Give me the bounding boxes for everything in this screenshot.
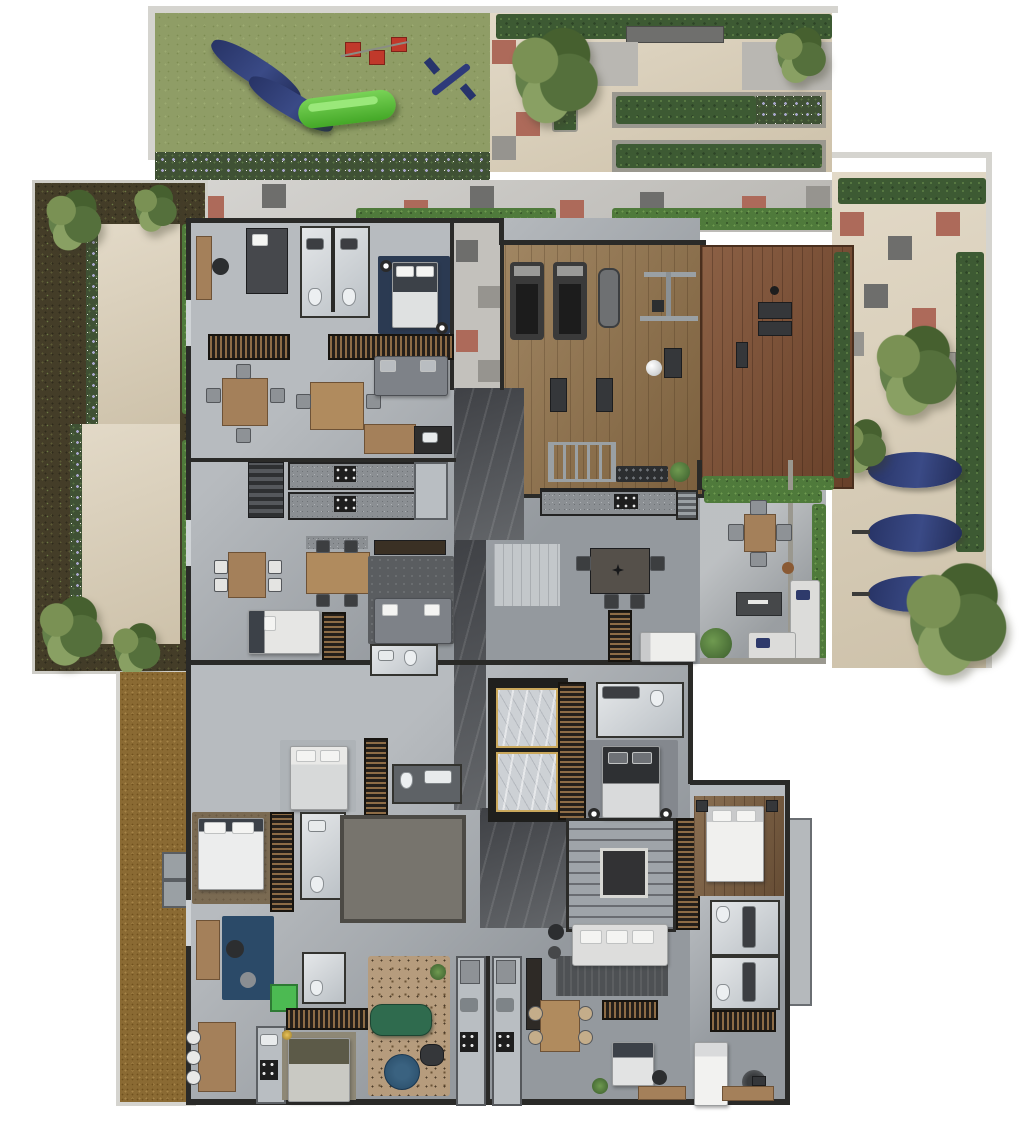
bl-master-pillow [232,822,254,834]
tl-bathroom-divider [331,228,335,312]
bc-galley2-fridge [496,960,516,984]
elevator-cab-2 [496,752,558,812]
cable-station-bar-bottom [640,316,698,321]
bl-toilet1 [400,772,413,789]
ml-sink [378,650,394,661]
bl-wardrobe3 [286,1008,374,1030]
terrace-chair [728,524,744,541]
treadmill-2-belt [559,284,581,334]
bl-bath2-toilet [310,980,323,996]
bl-tub [424,770,452,784]
bl-wardrobe2 [270,812,294,912]
ladder-rack [548,442,616,482]
bl-bath2 [302,952,346,1004]
tl-sink-1 [306,238,324,250]
mid-hall-tiles [494,544,560,606]
mid-chair-dark [576,556,591,571]
swing-seat-red-2 [369,50,385,65]
bc-galley2-sink [496,998,514,1012]
bc-bed-pillow [632,752,652,764]
outer-wall-top [148,6,838,13]
bc-galley1-stove [460,1032,478,1052]
bc-rattan-chair [528,1030,543,1045]
br-vanity-2 [742,962,756,1002]
ml-dining-big [306,552,370,594]
ml-chair-dark [316,594,330,607]
terrace-chair [750,500,767,515]
treadmill-1-belt [516,284,538,334]
tl-wardrobe-1 [208,334,290,360]
tl-toilet-2 [342,288,356,306]
tile-gray [806,186,830,210]
bc-plant [592,1078,608,1094]
bl-hall-sink [308,820,326,832]
tl-speaker-2 [436,322,448,334]
outer-wall-playground-left [148,6,155,160]
left-garden-flower-border-upper [86,224,98,424]
tl-chair [270,388,285,403]
ml-sofa-pillow [424,604,440,616]
navy-lounger-2 [868,514,962,552]
wall-right-lower-edge [688,660,693,784]
bc-rattan-chair [578,1030,593,1045]
ml-stove-1 [334,466,356,482]
terrace-fire-slot [748,600,768,604]
tl-chair [236,428,251,443]
br-bed-pillow [712,810,732,822]
ml-counter-right [374,540,446,555]
bl-void-court [340,815,466,923]
tl-toilet-1 [308,288,322,306]
wall-top-gym [499,240,702,245]
br-desk-items [752,1076,766,1086]
mid-chair-dark [650,556,665,571]
right-patio-hedge-top [838,178,986,204]
bc-desk-chair [652,1070,667,1085]
mid-kitchen-counter [540,490,678,516]
ml-dining-small [228,552,266,598]
br-nightstand-2 [766,800,778,812]
bc-bed-pillow [608,752,628,764]
gym-mat-1 [550,378,567,412]
bl-master-pillow [204,822,226,834]
bl-kitchen-stove [260,1060,278,1080]
terrace-bottom-curb [700,658,826,664]
mid-chair-dark [604,594,619,609]
dumbbell-rack [616,466,668,482]
lounger-arm-left [852,592,870,596]
tl-cabinet-pillow [252,234,268,246]
bl-dining-chair [186,1070,201,1085]
outer-wall-right-top-step [832,152,990,158]
gym-ball [646,360,662,376]
wall-top-apartments [186,218,504,223]
wall-right-wing-top [690,780,790,785]
right-patio-hedge-column [956,252,984,552]
bc-sofa-cushion [580,930,602,944]
bl-dining-chair [186,1030,201,1045]
tile-gray [492,136,516,160]
tile-dark [470,186,494,210]
ml-chair [214,578,228,592]
stair-center-void [600,848,648,898]
ml-utility-shelf [248,462,284,518]
bl-office-chair [226,940,244,958]
core-wardrobe-slats [558,682,586,820]
bl-hall-toilet [310,876,324,893]
mid-kitchen-stove [614,494,638,509]
tl-chair [206,388,221,403]
lobby-marble [480,808,568,928]
corridor-marble-upper [454,388,524,540]
bc-desk [638,1086,686,1100]
flowerbed-top [155,152,490,180]
bc-sconce-2 [660,808,672,820]
tl-chair [296,394,311,409]
tl-sink-2 [340,238,358,250]
tl-sofa-pillow [380,360,396,372]
br-bed-pillow [736,810,756,822]
bc-wardrobe-h [602,1000,658,1020]
bc-side-table-2 [548,946,561,959]
elliptical [598,268,620,328]
bc-bed2 [612,1042,654,1086]
br-wardrobe [710,1010,776,1032]
br-desk [722,1086,774,1101]
right-wing-balcony [788,818,812,1006]
tl-speaker-1 [380,260,392,272]
tile-red [840,212,864,236]
top-patio-planter-flowers-1 [756,96,822,124]
bc-rattan-chair [528,1006,543,1021]
ml-chair-dark [344,540,358,553]
elevator-cab-1 [496,688,558,748]
hallway-tile-gray [478,286,500,308]
treadmill-1-console [514,266,540,276]
bc-toilet [650,690,664,707]
wall-corridor-left [450,222,454,390]
tile-dark [864,284,888,308]
top-patio-planter-hedge-1 [616,96,756,124]
tl-kitchen-sink [422,432,438,443]
tile-dark [888,236,912,260]
bc-sofa-cushion [606,930,628,944]
top-patio-bench [626,26,724,43]
br-nightstand-1 [696,800,708,812]
ml-chair [268,560,282,574]
deck-speaker [770,286,779,295]
deck-bench [736,342,748,368]
yoga-mat-1 [758,302,792,319]
bc-galley1-fridge [460,960,480,984]
bl-armchair [420,1044,444,1066]
tile-red [936,212,960,236]
tl-desk [196,236,212,300]
bl-office-ottoman [240,972,256,988]
gym-cabinet [664,348,682,378]
tl-chair [236,364,251,379]
br-vanity-1 [742,906,756,948]
terrace-chair [750,552,767,567]
tl-chair [366,394,381,409]
gym-vent [676,490,698,520]
terrace-pillow-navy [796,590,810,600]
bl-green-sofa [370,1004,432,1036]
terrace-chair [776,524,792,541]
ml-stove-2 [334,496,356,512]
ml-toilet [404,650,417,666]
bl-dining-chair [186,1050,201,1065]
bc-sofa-cushion [632,930,654,944]
wall-gym-terrace [697,460,702,490]
tl-kitchen-counter-wood [364,424,416,454]
bl-office-desk [196,920,220,980]
br-toilet-1 [716,906,730,923]
bl-wardrobe1 [364,738,388,816]
mid-chair-dark [630,594,645,609]
mr-wardrobe [608,610,632,662]
bl-bed1-pillow [296,750,316,762]
ml-chair-dark [316,540,330,553]
hallway-tile-dark [456,240,478,262]
hallway-tile-gray-2 [478,360,500,382]
yoga-deck [700,245,854,489]
bl-bed1-pillow [320,750,340,762]
floor-plan-canvas [0,0,1024,1138]
deck-hedge-bottom [702,476,834,490]
ml-sofa-pillow [382,604,398,616]
tl-sofa-pillow [420,360,436,372]
cable-station-weights [652,300,664,312]
bl-dining-table [198,1022,236,1092]
bc-galley-divider [486,956,490,1102]
gym-plant [670,462,690,482]
ml-bed-pillow [264,616,276,631]
tile-dark [262,184,286,208]
ml-fridges [414,462,448,520]
terrace-plant [700,628,732,660]
top-patio-planter-hedge-2 [616,144,822,168]
wall-right-wing-right [785,780,790,1104]
left-garden-terrace-upper [96,224,180,424]
ml-wardrobe [322,612,346,660]
terrace-fire-pit [736,592,782,616]
bc-sconce-1 [588,808,600,820]
bl-round-table [384,1054,420,1090]
right-patio-tree-bottom [888,556,1018,686]
terrace-table [744,514,776,552]
yoga-mat-2 [758,321,792,336]
window-left-2 [186,520,191,566]
tl-dining-table-2 [310,382,364,430]
mr-bed [640,632,696,662]
tl-bed-pillow-2 [416,266,434,277]
bl-plant [430,964,446,980]
ml-chair-dark [344,594,358,607]
bl-gold-lamp [282,1030,292,1040]
lounger-arm-left [852,530,870,534]
ml-chair [214,560,228,574]
bc-side-table-1 [548,924,564,940]
ml-chair [268,578,282,592]
bc-galley1-sink [460,998,478,1012]
tl-dining-table-1 [222,378,268,426]
tl-desk-chair [212,258,229,275]
tl-bed-pillow-1 [396,266,414,277]
br-toilet-2 [716,984,730,1001]
bc-bath-vanity [602,686,640,699]
gym-mat-2 [596,378,613,412]
deck-hedge-right [834,252,850,478]
bc-galley2-stove [496,1032,514,1052]
window-left-3 [186,900,191,946]
bc-dining-table [540,1000,580,1052]
cable-station-pole [666,272,671,316]
ml-bed [248,610,320,654]
bl-bed3 [288,1038,350,1102]
hallway-tile-red [456,330,478,352]
bc-rattan-chair [578,1006,593,1021]
terrace-pillow-navy-2 [756,638,770,648]
window-left-1 [186,300,191,346]
terrace-basket [782,562,794,574]
treadmill-2-console [557,266,583,276]
wall-corridor-right [500,222,504,390]
bl-kitchen-sink [260,1034,278,1046]
